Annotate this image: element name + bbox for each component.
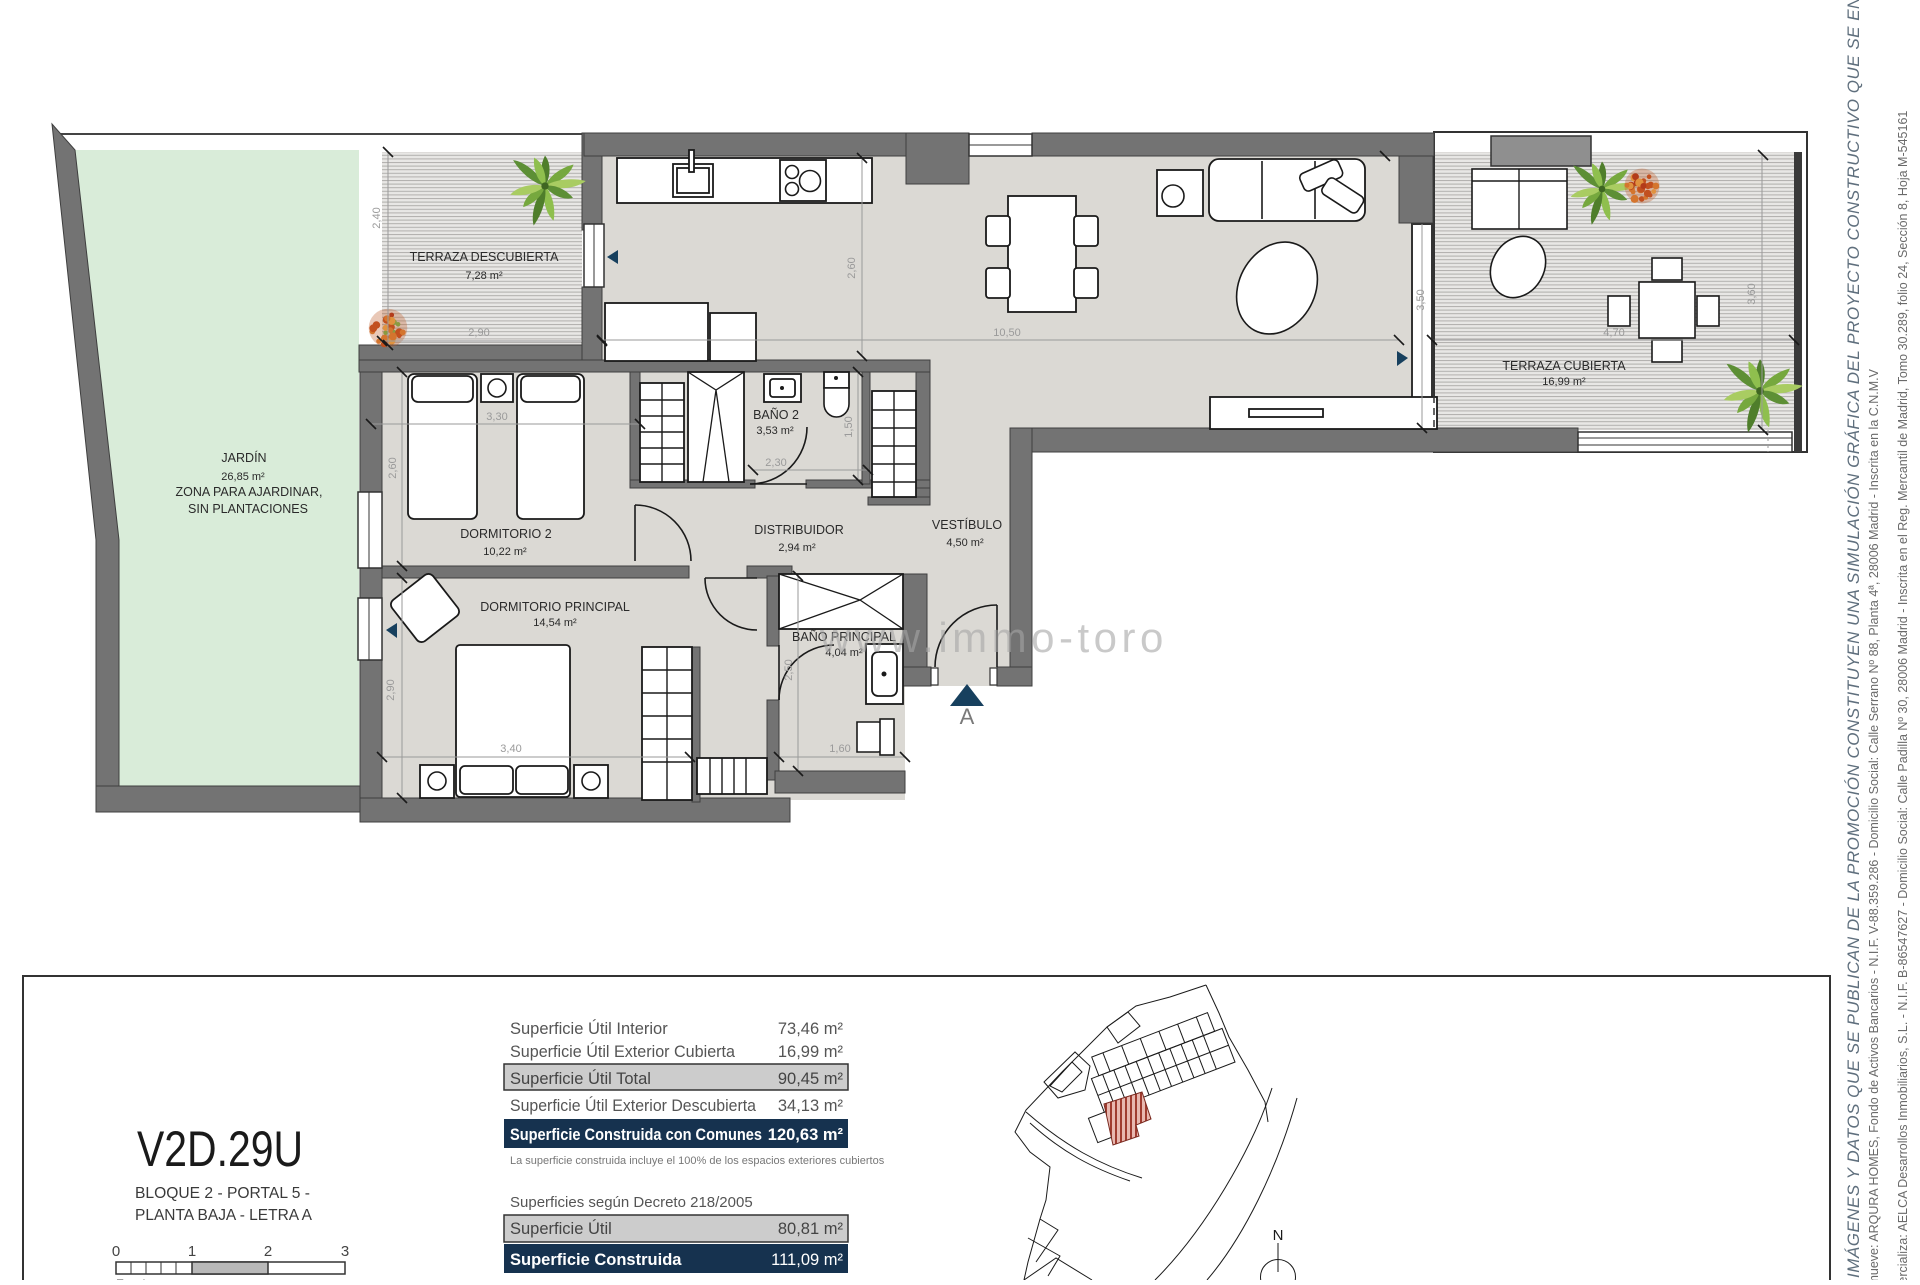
svg-text:0: 0 — [112, 1243, 120, 1260]
svg-text:TERRAZA DESCUBIERTA: TERRAZA DESCUBIERTA — [410, 250, 560, 264]
svg-text:80,81 m²: 80,81 m² — [778, 1220, 844, 1238]
svg-text:La superficie construida inclu: La superficie construida incluye el 100%… — [510, 1155, 885, 1167]
svg-text:2,60: 2,60 — [387, 457, 399, 478]
svg-text:JARDÍN: JARDÍN — [221, 450, 266, 465]
svg-text:A: A — [960, 704, 975, 729]
svg-text:2,90: 2,90 — [385, 679, 397, 700]
svg-text:1,60: 1,60 — [829, 743, 850, 755]
svg-text:2: 2 — [264, 1243, 272, 1260]
svg-text:3,50: 3,50 — [1415, 289, 1427, 310]
svg-text:3,53 m²: 3,53 m² — [756, 425, 794, 437]
svg-text:111,09 m²: 111,09 m² — [771, 1251, 843, 1269]
svg-text:2,30: 2,30 — [765, 457, 786, 469]
svg-text:4,50 m²: 4,50 m² — [946, 537, 984, 549]
svg-text:N: N — [1273, 1227, 1284, 1244]
svg-text:16,99 m²: 16,99 m² — [778, 1043, 844, 1061]
svg-text:16,99 m²: 16,99 m² — [1542, 376, 1586, 388]
svg-text:V2D.29U: V2D.29U — [137, 1121, 303, 1177]
svg-text:Promueve: ARQURA HOMES, Fondo: Promueve: ARQURA HOMES, Fondo de Activos… — [1867, 368, 1881, 1280]
svg-text:DORMITORIO PRINCIPAL: DORMITORIO PRINCIPAL — [480, 600, 630, 614]
svg-text:www.immo-toro: www.immo-toro — [819, 614, 1168, 661]
svg-text:3,30: 3,30 — [486, 411, 507, 423]
svg-text:TERRAZA CUBIERTA: TERRAZA CUBIERTA — [1502, 359, 1626, 373]
svg-text:2,94 m²: 2,94 m² — [778, 542, 816, 554]
svg-text:4,70: 4,70 — [1603, 327, 1624, 339]
svg-text:Superficies según Decreto 218/: Superficies según Decreto 218/2005 — [510, 1194, 753, 1211]
svg-text:1: 1 — [188, 1243, 196, 1260]
svg-text:SIN PLANTACIONES: SIN PLANTACIONES — [188, 502, 308, 516]
svg-text:DISTRIBUIDOR: DISTRIBUIDOR — [754, 523, 844, 537]
svg-text:IMÁGENES Y DATOS QUE SE PUBLIC: IMÁGENES Y DATOS QUE SE PUBLICAN DE LA P… — [1844, 0, 1863, 1278]
svg-text:1,50: 1,50 — [843, 416, 855, 437]
svg-text:2,50: 2,50 — [783, 659, 795, 680]
svg-text:3,60: 3,60 — [1746, 283, 1758, 304]
svg-text:3: 3 — [341, 1243, 349, 1260]
svg-text:7,28 m²: 7,28 m² — [465, 270, 503, 282]
svg-text:34,13 m²: 34,13 m² — [778, 1097, 844, 1115]
svg-text:2,40: 2,40 — [371, 207, 383, 228]
svg-text:VESTÍBULO: VESTÍBULO — [932, 517, 1002, 532]
svg-text:Superficie Útil: Superficie Útil — [510, 1219, 612, 1238]
svg-text:73,46 m²: 73,46 m² — [778, 1020, 844, 1038]
svg-text:Superficie Útil Interior: Superficie Útil Interior — [510, 1019, 668, 1038]
svg-text:14,54 m²: 14,54 m² — [533, 617, 577, 629]
svg-text:2,90: 2,90 — [468, 327, 489, 339]
svg-text:ZONA PARA AJARDINAR,: ZONA PARA AJARDINAR, — [175, 485, 322, 499]
svg-text:Superficie Construida: Superficie Construida — [510, 1251, 682, 1269]
svg-text:120,63 m²: 120,63 m² — [768, 1126, 844, 1144]
svg-text:BAÑO 2: BAÑO 2 — [753, 408, 799, 422]
svg-text:PLANTA BAJA - LETRA A: PLANTA BAJA - LETRA A — [135, 1207, 312, 1224]
svg-text:10,50: 10,50 — [993, 327, 1021, 339]
svg-text:Superficie Útil Exterior Descu: Superficie Útil Exterior Descubierta — [510, 1096, 757, 1115]
svg-text:10,22 m²: 10,22 m² — [483, 546, 527, 558]
svg-text:Superficie Útil Exterior Cubie: Superficie Útil Exterior Cubierta — [510, 1042, 736, 1061]
svg-text:Superficie Útil Total: Superficie Útil Total — [510, 1069, 651, 1088]
svg-text:3,40: 3,40 — [500, 743, 521, 755]
svg-text:2,60: 2,60 — [846, 257, 858, 278]
svg-text:Comercializa: AELCA Desarrollo: Comercializa: AELCA Desarrollos Inmobili… — [1896, 111, 1910, 1280]
svg-text:90,45 m²: 90,45 m² — [778, 1070, 844, 1088]
svg-text:26,85 m²: 26,85 m² — [221, 471, 265, 483]
svg-text:BLOQUE 2 - PORTAL 5 -: BLOQUE 2 - PORTAL 5 - — [135, 1185, 310, 1202]
svg-text:Superficie Construida con Comu: Superficie Construida con Comunes — [510, 1126, 762, 1144]
svg-text:DORMITORIO 2: DORMITORIO 2 — [460, 527, 551, 541]
